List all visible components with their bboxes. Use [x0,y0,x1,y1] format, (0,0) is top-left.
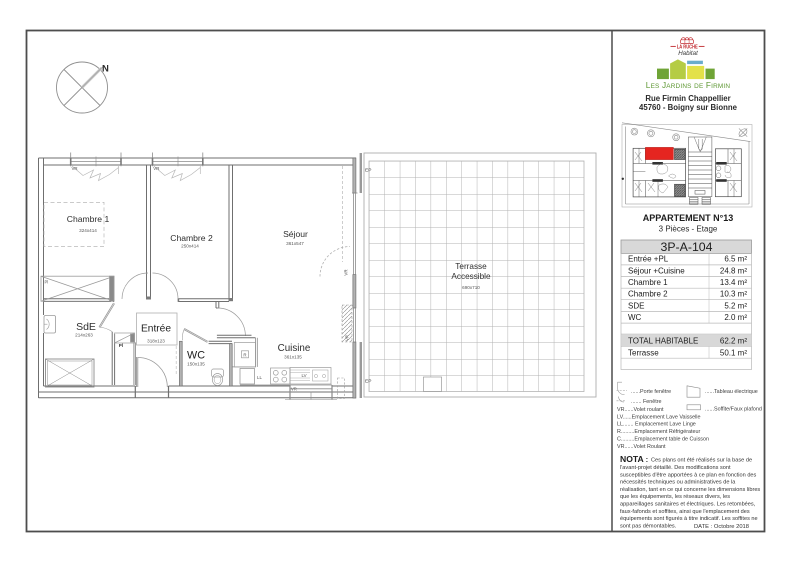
svg-text:susceptibles d'être apportées: susceptibles d'être apportées à ce plan … [620,472,757,478]
svg-text:Ces plans ont été réalisés sur: Ces plans ont été réalisés sur la base d… [651,458,752,464]
svg-text:nécessités techniques ou admin: nécessités techniques ou administratives… [620,480,736,486]
svg-text:C.........Emplacement table de: C.........Emplacement table de Cuisson [617,437,709,443]
svg-text:EP: EP [365,168,371,174]
svg-text:Terrasse: Terrasse [628,349,659,358]
svg-text:24.8 m²: 24.8 m² [720,266,747,275]
svg-text:TOTAL HABITABLE: TOTAL HABITABLE [628,337,698,346]
svg-text:que les équipements, les résea: que les équipements, les réseaux divers,… [620,494,730,500]
svg-text:62.2 m²: 62.2 m² [720,337,747,346]
svg-text:45760 - Boigny sur Bionne: 45760 - Boigny sur Bionne [639,103,738,112]
svg-text:13.4 m²: 13.4 m² [720,278,747,287]
svg-text:Habitat: Habitat [678,50,698,57]
svg-text:250x414: 250x414 [181,244,199,249]
svg-text:LV: LV [301,373,306,378]
svg-text:Terrasse: Terrasse [455,262,487,271]
svg-text:361x135: 361x135 [284,355,302,360]
svg-text:NOTA :: NOTA : [620,454,648,464]
svg-text:10.3 m²: 10.3 m² [720,290,747,299]
svg-text:3P-A-104: 3P-A-104 [661,240,713,254]
svg-text:LL....... Emplacement Lave Lin: LL....... Emplacement Lave Linge [617,422,696,428]
svg-text:N: N [102,64,109,75]
svg-text:Séjour: Séjour [283,229,308,239]
svg-text:5.2 m²: 5.2 m² [724,301,747,310]
svg-text:l'avant-projet détaillé. Des m: l'avant-projet détaillé. Des modificatio… [620,465,731,471]
svg-text:faux-fafonds et soffites, ains: faux-fafonds et soffites, ainsi que l'em… [620,509,750,515]
svg-text:VR......Volet roulant: VR......Volet roulant [617,407,664,413]
svg-text:......Porte fenêtre: ......Porte fenêtre [631,389,671,395]
svg-text:Pl: Pl [45,280,49,285]
svg-text:2.0 m²: 2.0 m² [724,313,747,322]
svg-text:Accessible: Accessible [451,272,491,281]
svg-text:Chambre 1: Chambre 1 [628,278,668,287]
svg-text:R.........Emplacement Réfrigér: R.........Emplacement Réfrigérateur [617,429,700,435]
svg-text:Chambre 2: Chambre 2 [628,290,668,299]
svg-text:690x710: 690x710 [462,285,480,290]
svg-text:3 Pièces - Etage: 3 Pièces - Etage [659,225,718,234]
svg-text:WC: WC [187,350,205,362]
svg-text:VR: VR [291,387,297,392]
svg-text:Entrée +PL: Entrée +PL [628,255,669,264]
svg-text:SDE: SDE [628,301,644,310]
svg-text:50.1 m²: 50.1 m² [720,349,747,358]
svg-text:214x263: 214x263 [75,333,93,338]
svg-text:324x414: 324x414 [79,228,97,233]
svg-text:VR: VR [72,166,78,171]
svg-text:Rue Firmin Chappellier: Rue Firmin Chappellier [645,94,730,103]
svg-text:Pl: Pl [119,343,123,348]
svg-text:LL: LL [257,375,262,380]
svg-text:6.5 m²: 6.5 m² [724,255,747,264]
svg-text:150x135: 150x135 [187,362,205,367]
svg-text:R: R [243,353,246,358]
svg-text:....... Fenêtre: ....... Fenêtre [631,399,662,405]
svg-text:VR: VR [153,166,159,171]
svg-text:sont pas démontables.: sont pas démontables. [620,523,677,529]
svg-text:LES JARDINS DE FIRMIN: LES JARDINS DE FIRMIN [646,81,731,90]
svg-text:Entrée: Entrée [141,324,171,335]
svg-text:VR......Volet Roulant: VR......Volet Roulant [617,444,666,450]
svg-text:appareillages sanitaires et él: appareillages sanitaires et électriques.… [620,502,756,508]
svg-text:......Tableau électrique: ......Tableau électrique [705,389,758,395]
svg-text:réalisation, tant en ce qui co: réalisation, tant en ce qui concerne les… [620,487,760,493]
svg-text:361x547: 361x547 [286,241,304,246]
svg-text:VR: VR [345,335,350,341]
svg-text:WC: WC [628,313,642,322]
svg-text:Séjour +Cuisine: Séjour +Cuisine [628,266,685,275]
svg-text:SdE: SdE [76,321,96,333]
svg-text:EP: EP [365,379,371,385]
svg-text:Cuisine: Cuisine [278,343,311,354]
svg-text:APPARTEMENT N°13: APPARTEMENT N°13 [643,213,733,223]
svg-text:Chambre 1: Chambre 1 [67,214,110,224]
svg-text:LV......Emplacement Lave Vaiss: LV......Emplacement Lave Vaisselle [617,414,701,420]
svg-text:DATE : Octobre 2018: DATE : Octobre 2018 [694,524,749,530]
svg-text:......Soffite/Faux plafond: ......Soffite/Faux plafond [705,407,762,413]
svg-text:318x123: 318x123 [147,339,165,344]
svg-text:Chambre 2: Chambre 2 [170,233,213,243]
svg-text:équipements sont figurés à tit: équipements sont figurés à titre indicat… [620,516,758,522]
svg-text:VR: VR [343,269,348,275]
